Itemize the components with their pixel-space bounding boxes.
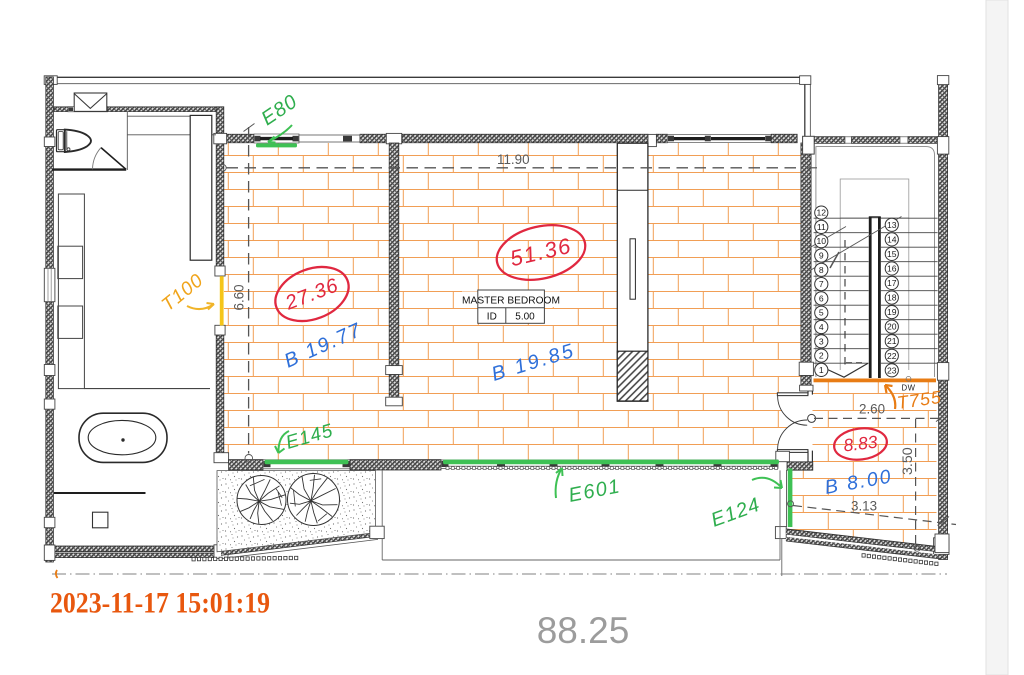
- svg-text:12: 12: [817, 208, 827, 218]
- svg-text:19: 19: [887, 307, 897, 317]
- svg-text:11: 11: [817, 222, 826, 232]
- svg-text:23: 23: [887, 365, 897, 375]
- svg-text:22: 22: [887, 351, 897, 361]
- svg-text:15: 15: [887, 249, 897, 259]
- svg-text:8.83: 8.83: [842, 431, 879, 455]
- svg-text:MASTER BEDROOM: MASTER BEDROOM: [462, 295, 560, 306]
- svg-text:16: 16: [887, 264, 897, 274]
- svg-text:2023-11-17 15:01:19: 2023-11-17 15:01:19: [50, 587, 270, 620]
- svg-text:6: 6: [819, 293, 824, 303]
- svg-text:3.13: 3.13: [851, 499, 877, 514]
- svg-text:11.90: 11.90: [497, 152, 530, 167]
- svg-text:13: 13: [887, 220, 897, 230]
- svg-text:5: 5: [819, 308, 824, 318]
- svg-text:1: 1: [819, 365, 824, 375]
- svg-text:14: 14: [887, 234, 897, 244]
- svg-text:2.60: 2.60: [859, 401, 885, 416]
- svg-text:17: 17: [887, 278, 897, 288]
- svg-text:5.00: 5.00: [515, 312, 535, 323]
- svg-text:3: 3: [819, 336, 824, 346]
- svg-text:9: 9: [819, 251, 824, 261]
- svg-text:6.60: 6.60: [232, 284, 247, 310]
- svg-text:2: 2: [819, 351, 824, 361]
- svg-text:88.25: 88.25: [537, 610, 630, 651]
- svg-text:20: 20: [887, 322, 897, 332]
- svg-text:4: 4: [819, 322, 824, 332]
- svg-text:18: 18: [887, 293, 897, 303]
- svg-text:3.50: 3.50: [900, 447, 916, 475]
- svg-text:8: 8: [819, 265, 824, 275]
- svg-text:21: 21: [887, 336, 897, 346]
- svg-text:10: 10: [817, 236, 827, 246]
- svg-text:ID: ID: [487, 312, 497, 323]
- svg-text:7: 7: [819, 279, 824, 289]
